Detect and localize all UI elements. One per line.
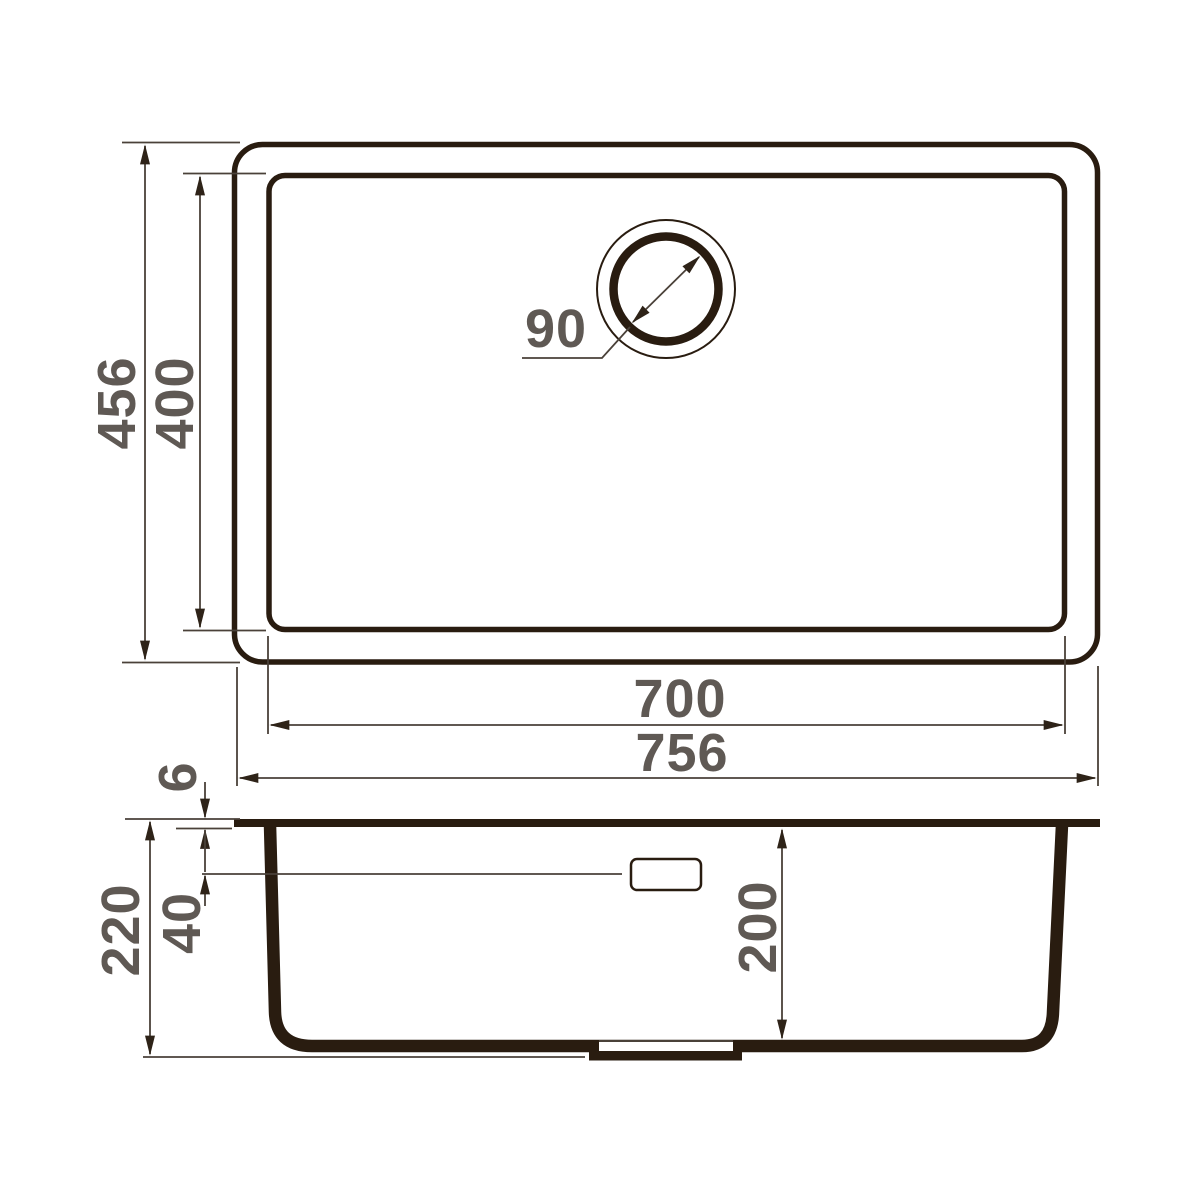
rim-thickness-label: 6 (148, 761, 208, 792)
overall-width-label: 756 (635, 723, 728, 783)
sink-top-view: 90 456 400 700 756 (87, 143, 1098, 787)
technical-drawing-canvas: 90 456 400 700 756 (0, 0, 1200, 1200)
drain-diameter-arrow (633, 257, 699, 322)
sink-section-view: 6 40 220 200 (91, 761, 1100, 1060)
bowl-width-label: 700 (633, 669, 726, 729)
drain-diameter-label: 90 (525, 299, 587, 359)
overflow-level-label: 40 (152, 892, 212, 954)
bowl-depth-label: 400 (145, 356, 205, 449)
outer-rim-outline (235, 145, 1098, 663)
bowl-height-label: 200 (728, 880, 788, 973)
overall-depth-label: 456 (87, 356, 147, 449)
total-height-label: 220 (91, 883, 151, 976)
rim-section (234, 819, 1100, 827)
sink-dimension-drawing: 90 456 400 700 756 (0, 0, 1200, 1200)
bowl-opening-outline (269, 176, 1065, 630)
overflow-hole (631, 859, 701, 890)
drain-flange (589, 1051, 742, 1061)
